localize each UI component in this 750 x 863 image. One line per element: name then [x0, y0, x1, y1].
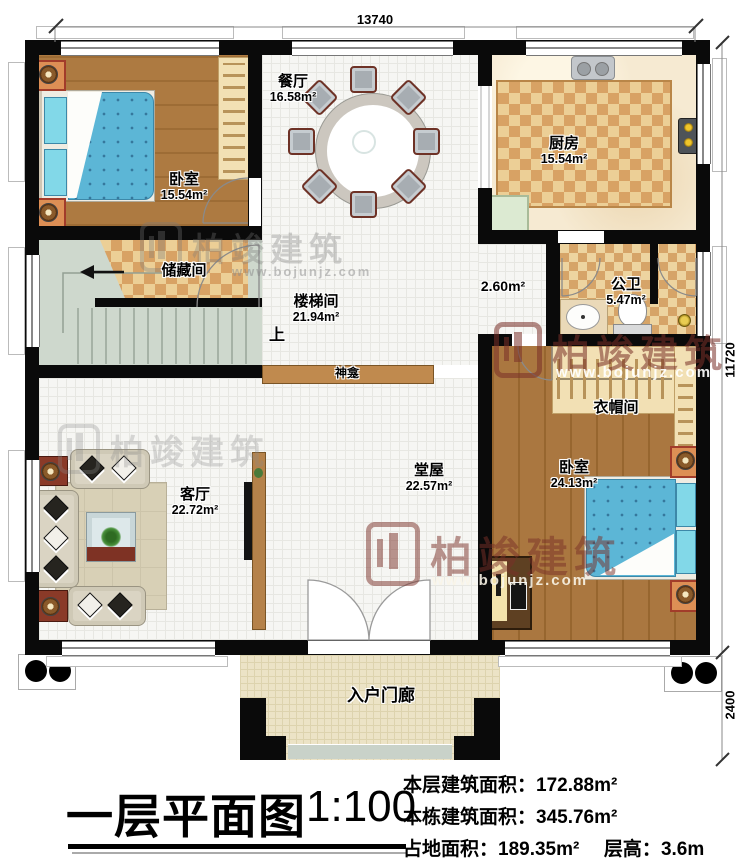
- room-label-porch: 入户门廊: [347, 688, 415, 704]
- shrine-annotation: 神龛: [335, 367, 359, 380]
- room-name: 堂屋: [406, 463, 453, 479]
- door-arc-shower: [658, 258, 696, 296]
- room-label-storage: 储藏间: [161, 263, 206, 279]
- room-label-living: 客厅 22.72m²: [172, 487, 219, 517]
- plan-title: 一层平面图: [66, 778, 306, 847]
- door-arc-bedroom2: [518, 346, 552, 380]
- room-label-corridor: 2.60m²: [481, 279, 525, 293]
- room-area: 2.60m²: [481, 279, 525, 293]
- door-arc-bedroom1: [203, 178, 248, 223]
- room-label-kitchen: 厨房 15.54m²: [541, 136, 588, 166]
- stat-label: 本层建筑面积：: [403, 775, 536, 796]
- door-arc-bathroom: [562, 258, 600, 296]
- kitchen-opening-track: [481, 86, 489, 188]
- room-area: 22.57m²: [406, 479, 453, 493]
- entry-door-right-leaf: [369, 580, 430, 640]
- room-name: 入户门廊: [347, 688, 415, 704]
- room-label-cloakroom: 衣帽间: [593, 400, 638, 416]
- room-area: 21.94m²: [293, 310, 340, 324]
- title-underline: [68, 844, 406, 849]
- room-area: 16.58m²: [270, 90, 317, 104]
- dim-porch-label: 2400: [723, 691, 738, 720]
- room-name: 卧室: [161, 172, 208, 188]
- shrine-label: 神龛: [335, 367, 359, 380]
- room-label-bedroom1: 卧室 15.54m²: [161, 172, 208, 202]
- stat-floor-area: 本层建筑面积：172.88m²: [403, 770, 617, 797]
- stat-value: 345.76m²: [536, 807, 617, 828]
- up-label: 上: [269, 328, 285, 344]
- room-area: 15.54m²: [161, 188, 208, 202]
- room-area: 15.54m²: [541, 152, 588, 166]
- room-area: 22.72m²: [172, 503, 219, 517]
- floor-plan: 柏竣建筑 www.bojunjz.com 柏竣建筑 www.bojunjz.co…: [0, 0, 750, 863]
- room-area: 5.47m²: [606, 293, 646, 307]
- plan-scale: 1:100: [306, 782, 416, 832]
- room-label-bathroom: 公卫 5.47m²: [606, 277, 646, 307]
- room-name: 衣帽间: [593, 400, 638, 416]
- room-label-dining: 餐厅 16.58m²: [270, 74, 317, 104]
- up-annotation: 上: [269, 328, 285, 344]
- stat-footprint-height: 占地面积：189.35m² 层高：3.6m: [403, 834, 704, 861]
- stat-value: 189.35m²: [498, 839, 579, 860]
- linework-layer: [0, 0, 750, 863]
- stat-value: 3.6m: [661, 839, 704, 860]
- room-name: 卧室: [551, 460, 598, 476]
- title-underline-thin: [72, 852, 406, 854]
- stat-building-area: 本栋建筑面积：345.76m²: [403, 802, 617, 829]
- room-area: 24.13m²: [551, 476, 598, 490]
- entry-door-left-leaf: [308, 580, 369, 640]
- room-name: 楼梯间: [293, 294, 340, 310]
- room-label-bedroom2: 卧室 24.13m²: [551, 460, 598, 490]
- room-label-stairwell: 楼梯间 21.94m²: [293, 294, 340, 324]
- stat-label: 层高：: [604, 839, 661, 860]
- stair-arrow-icon: [80, 265, 94, 279]
- room-name: 餐厅: [270, 74, 317, 90]
- dim-right-label: 11720: [723, 342, 738, 377]
- stat-value: 172.88m²: [536, 775, 617, 796]
- room-name: 客厅: [172, 487, 219, 503]
- room-name: 储藏间: [161, 263, 206, 279]
- dim-top-label: 13740: [357, 12, 393, 27]
- room-name: 公卫: [606, 277, 646, 293]
- room-label-hall: 堂屋 22.57m²: [406, 463, 453, 493]
- room-name: 厨房: [541, 136, 588, 152]
- dim-line-top: [55, 27, 695, 42]
- stair-treads: [78, 308, 246, 364]
- stat-label: 本栋建筑面积：: [403, 807, 536, 828]
- stat-label: 占地面积：: [403, 839, 498, 860]
